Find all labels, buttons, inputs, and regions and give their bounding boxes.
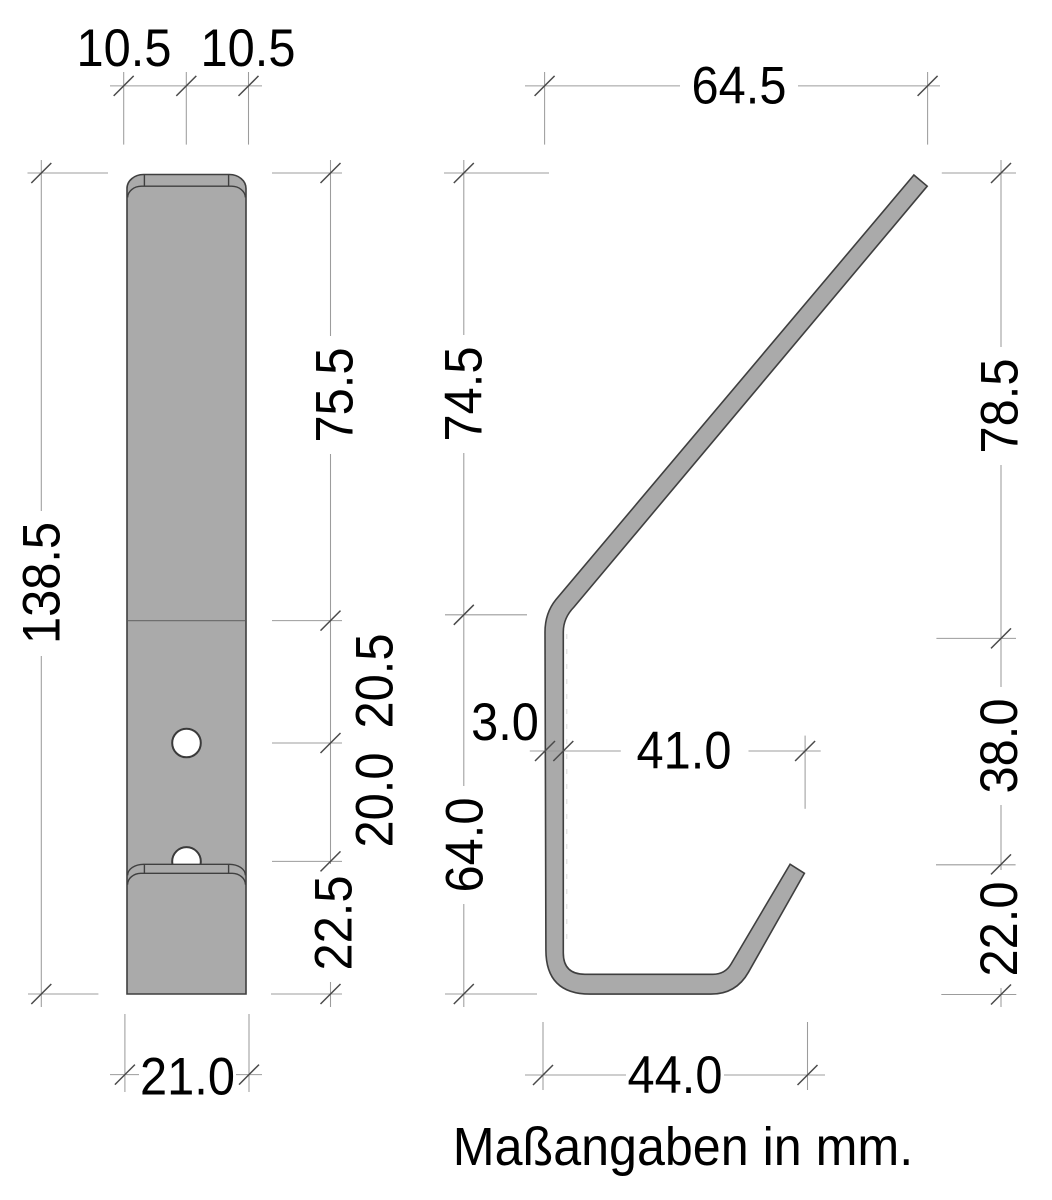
- svg-text:38.0: 38.0: [969, 699, 1028, 794]
- svg-text:64.5: 64.5: [692, 56, 787, 115]
- svg-text:22.5: 22.5: [303, 876, 362, 971]
- svg-text:138.5: 138.5: [12, 522, 71, 644]
- svg-text:78.5: 78.5: [969, 359, 1028, 454]
- svg-text:64.0: 64.0: [434, 798, 493, 893]
- svg-text:21.0: 21.0: [140, 1047, 235, 1106]
- svg-text:10.5: 10.5: [77, 18, 172, 77]
- svg-text:20.0: 20.0: [344, 753, 403, 848]
- svg-text:20.5: 20.5: [344, 634, 403, 729]
- svg-text:44.0: 44.0: [628, 1045, 723, 1104]
- svg-text:41.0: 41.0: [637, 721, 732, 780]
- svg-text:10.5: 10.5: [201, 18, 296, 77]
- svg-text:3.0: 3.0: [471, 692, 539, 751]
- svg-text:22.0: 22.0: [969, 882, 1028, 977]
- svg-text:75.5: 75.5: [304, 348, 363, 443]
- svg-text:Maßangaben in mm.: Maßangaben in mm.: [453, 1117, 913, 1177]
- svg-text:74.5: 74.5: [433, 347, 492, 442]
